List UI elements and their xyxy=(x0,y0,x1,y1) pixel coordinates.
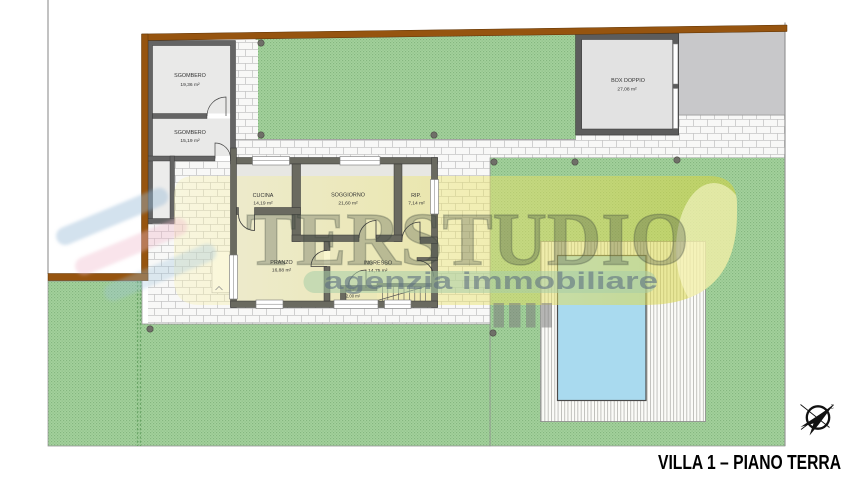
svg-text:VILLA 1 – PIANO TERRA: VILLA 1 – PIANO TERRA xyxy=(658,451,841,474)
svg-text:15,19 m²: 15,19 m² xyxy=(180,138,200,144)
svg-text:BOX DOPPIO: BOX DOPPIO xyxy=(611,78,645,84)
svg-text:19,36 m²: 19,36 m² xyxy=(180,82,200,88)
svg-text:SGOMBERO: SGOMBERO xyxy=(174,73,206,79)
svg-text:z: z xyxy=(830,401,835,411)
svg-text:27,08 m²: 27,08 m² xyxy=(617,87,637,93)
svg-text:SGOMBERO: SGOMBERO xyxy=(174,130,206,136)
svg-text:agenzia immobiliare: agenzia immobiliare xyxy=(324,268,658,295)
